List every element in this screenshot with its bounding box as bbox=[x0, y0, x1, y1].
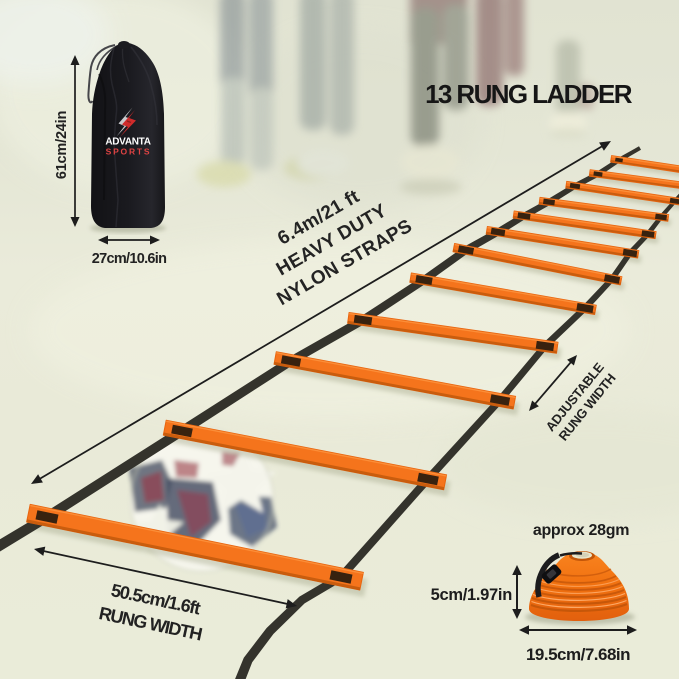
svg-text:19.5cm/7.68in: 19.5cm/7.68in bbox=[526, 645, 630, 664]
svg-text:SPORTS: SPORTS bbox=[106, 147, 152, 157]
svg-text:13 RUNG LADDER: 13 RUNG LADDER bbox=[425, 79, 633, 109]
svg-text:5cm/1.97in: 5cm/1.97in bbox=[431, 586, 513, 604]
svg-text:61cm/24in: 61cm/24in bbox=[54, 111, 70, 179]
svg-text:approx 28gm: approx 28gm bbox=[533, 522, 629, 539]
svg-text:27cm/10.6in: 27cm/10.6in bbox=[92, 251, 167, 267]
